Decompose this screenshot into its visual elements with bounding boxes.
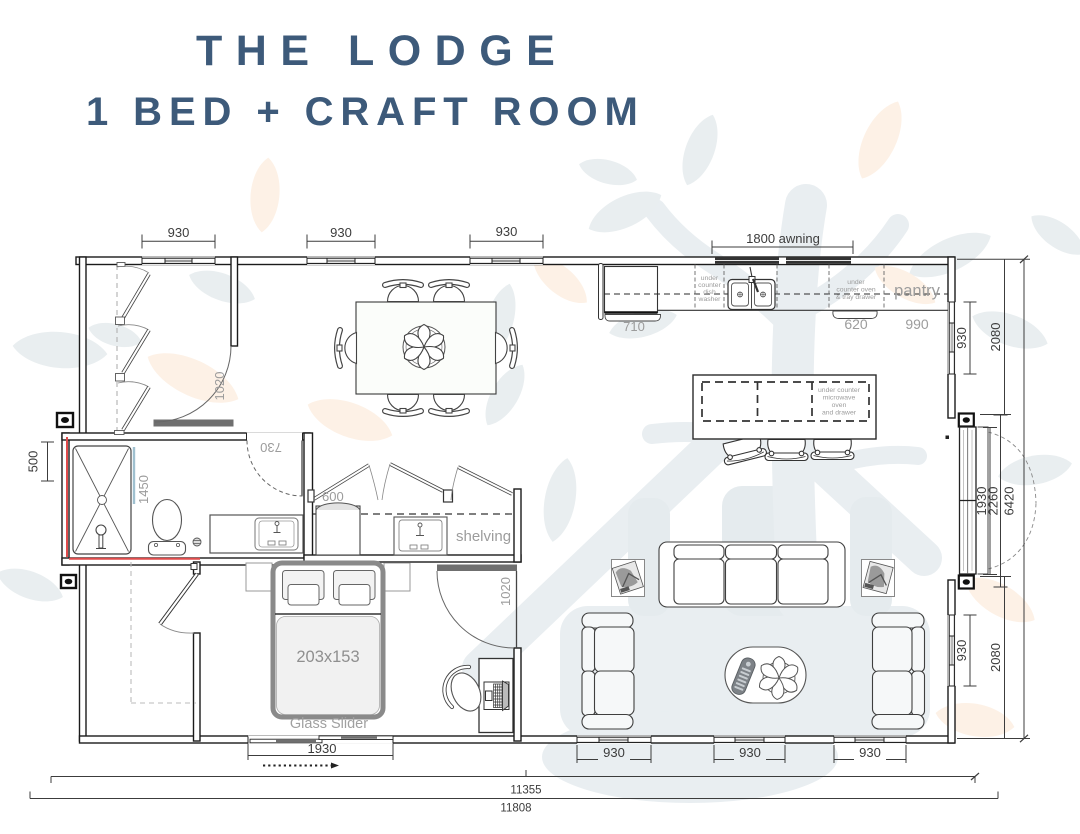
svg-text:11808: 11808 — [500, 803, 531, 815]
svg-text:620: 620 — [844, 316, 868, 332]
svg-text:930: 930 — [954, 640, 969, 662]
svg-text:6420: 6420 — [1002, 487, 1017, 516]
svg-text:1930: 1930 — [308, 741, 337, 756]
svg-text:1020: 1020 — [498, 577, 513, 606]
svg-text:under: under — [701, 275, 719, 282]
svg-text:2260: 2260 — [986, 487, 1001, 516]
svg-text:600: 600 — [322, 489, 344, 504]
svg-text:2080: 2080 — [988, 643, 1003, 672]
svg-text:1020: 1020 — [212, 372, 227, 401]
svg-text:930: 930 — [330, 225, 352, 240]
svg-text:THE LODGE: THE LODGE — [196, 27, 568, 75]
svg-text:11355: 11355 — [510, 785, 541, 797]
svg-text:990: 990 — [905, 316, 929, 332]
svg-text:under: under — [847, 279, 865, 286]
svg-text:730: 730 — [260, 440, 282, 455]
svg-text:930: 930 — [859, 745, 881, 760]
svg-text:1450: 1450 — [136, 475, 151, 504]
svg-text:930: 930 — [954, 327, 969, 349]
svg-text:930: 930 — [603, 745, 625, 760]
svg-text:washer: washer — [698, 296, 722, 303]
svg-text:under counter: under counter — [818, 387, 861, 394]
svg-text:1800 awning: 1800 awning — [746, 231, 820, 246]
svg-text:203x153: 203x153 — [296, 648, 359, 666]
svg-text:710: 710 — [623, 319, 645, 334]
svg-text:930: 930 — [496, 224, 518, 239]
svg-text:counter: counter — [698, 282, 721, 289]
svg-text:and drawer: and drawer — [822, 410, 857, 417]
svg-text:1 BED + CRAFT ROOM: 1 BED + CRAFT ROOM — [86, 90, 645, 134]
svg-text:pantry: pantry — [894, 282, 941, 300]
svg-text:500: 500 — [26, 451, 41, 473]
svg-text:Glass Slider: Glass Slider — [290, 716, 368, 732]
svg-text:& tray drawer: & tray drawer — [836, 294, 877, 301]
svg-text:oven: oven — [832, 402, 847, 409]
svg-text:counter oven: counter oven — [836, 287, 876, 294]
svg-text:shelving: shelving — [456, 528, 511, 545]
svg-text:930: 930 — [168, 225, 190, 240]
svg-text:microwave: microwave — [823, 395, 856, 402]
svg-text:930: 930 — [739, 745, 761, 760]
svg-text:dish: dish — [703, 289, 716, 296]
svg-text:2080: 2080 — [988, 323, 1003, 352]
